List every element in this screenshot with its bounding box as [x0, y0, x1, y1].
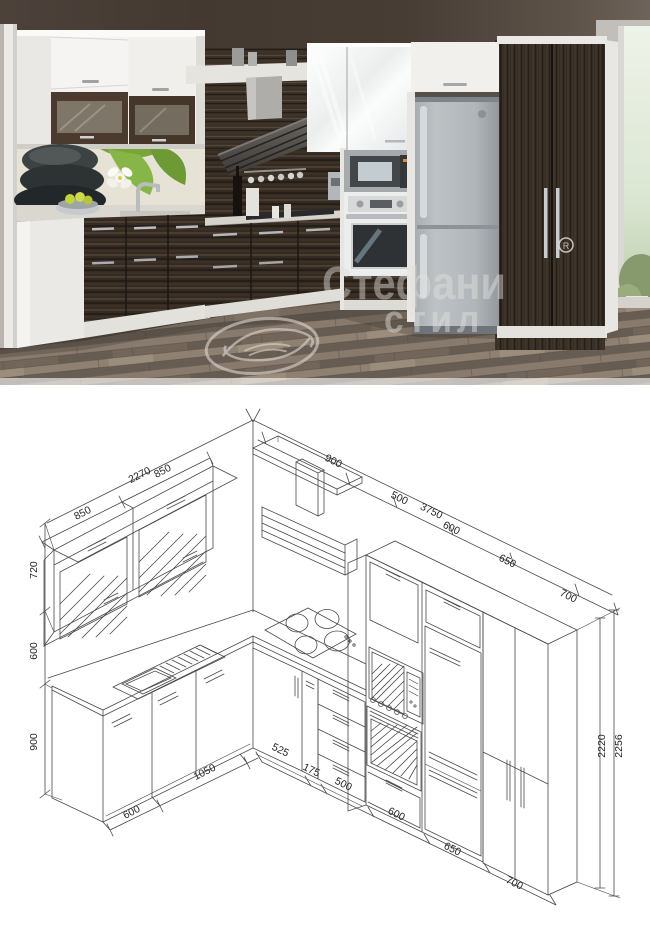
svg-text:525: 525	[270, 741, 291, 760]
svg-text:900: 900	[323, 452, 344, 471]
svg-text:600: 600	[386, 805, 407, 824]
svg-text:175: 175	[301, 761, 322, 780]
svg-text:650: 650	[442, 840, 463, 859]
svg-text:3750: 3750	[418, 501, 444, 522]
svg-text:600: 600	[28, 642, 40, 660]
svg-text:600: 600	[441, 519, 462, 538]
svg-text:600: 600	[121, 803, 142, 822]
svg-text:стил: стил	[384, 299, 484, 341]
svg-text:720: 720	[28, 561, 40, 579]
svg-text:2220: 2220	[596, 734, 608, 758]
svg-text:R: R	[563, 241, 570, 251]
svg-text:500: 500	[333, 775, 354, 794]
svg-text:2256: 2256	[613, 734, 625, 758]
svg-text:700: 700	[558, 587, 579, 606]
svg-text:650: 650	[497, 552, 518, 571]
svg-text:2270: 2270	[127, 465, 153, 486]
svg-text:850: 850	[72, 504, 93, 523]
svg-text:900: 900	[28, 733, 40, 751]
svg-text:700: 700	[504, 874, 525, 893]
